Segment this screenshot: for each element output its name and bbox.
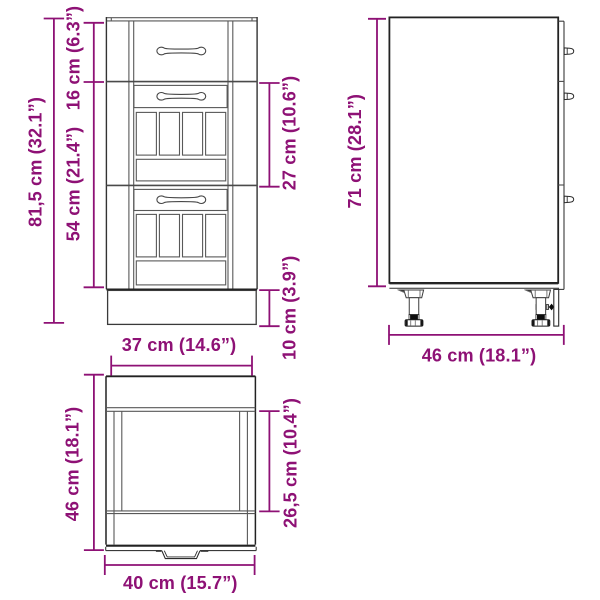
svg-text:81,5 cm (32.1”): 81,5 cm (32.1”) <box>26 97 46 227</box>
svg-text:16 cm (6.3”): 16 cm (6.3”) <box>64 6 84 110</box>
svg-text:27 cm (10.6”): 27 cm (10.6”) <box>280 76 300 191</box>
svg-text:10 cm (3.9”): 10 cm (3.9”) <box>280 256 300 360</box>
svg-text:26,5 cm (10.4”): 26,5 cm (10.4”) <box>281 398 301 528</box>
svg-text:40 cm (15.7”): 40 cm (15.7”) <box>123 573 238 593</box>
svg-text:71 cm (28.1”): 71 cm (28.1”) <box>345 94 365 209</box>
svg-text:46 cm (18.1”): 46 cm (18.1”) <box>422 346 537 366</box>
svg-text:46 cm (18.1”): 46 cm (18.1”) <box>63 407 83 522</box>
svg-text:54 cm (21.4”): 54 cm (21.4”) <box>64 127 84 242</box>
svg-text:37 cm (14.6”): 37 cm (14.6”) <box>122 335 237 355</box>
